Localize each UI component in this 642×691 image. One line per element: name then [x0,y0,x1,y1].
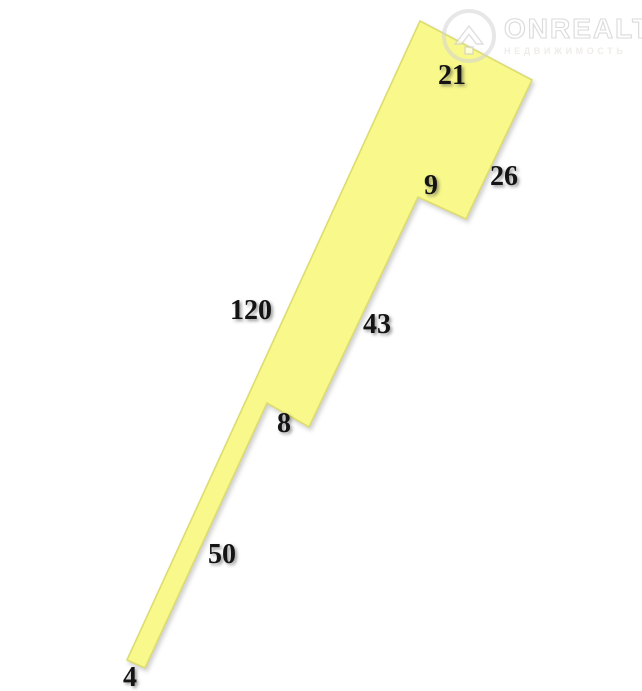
watermark-brand-text: ONREALT [504,14,642,45]
house-pin-icon [438,4,500,66]
land-plot-diagram: 21269431208504 ONREALT НЕДВИЖИМОСТЬ [0,0,642,691]
watermark-text-block: ONREALT НЕДВИЖИМОСТЬ [504,14,642,56]
watermark-tagline-text: НЕДВИЖИМОСТЬ [504,46,642,56]
parcel-polygon-layer [0,0,642,691]
onrealt-watermark: ONREALT НЕДВИЖИМОСТЬ [438,4,642,66]
parcel-outline [127,21,532,668]
